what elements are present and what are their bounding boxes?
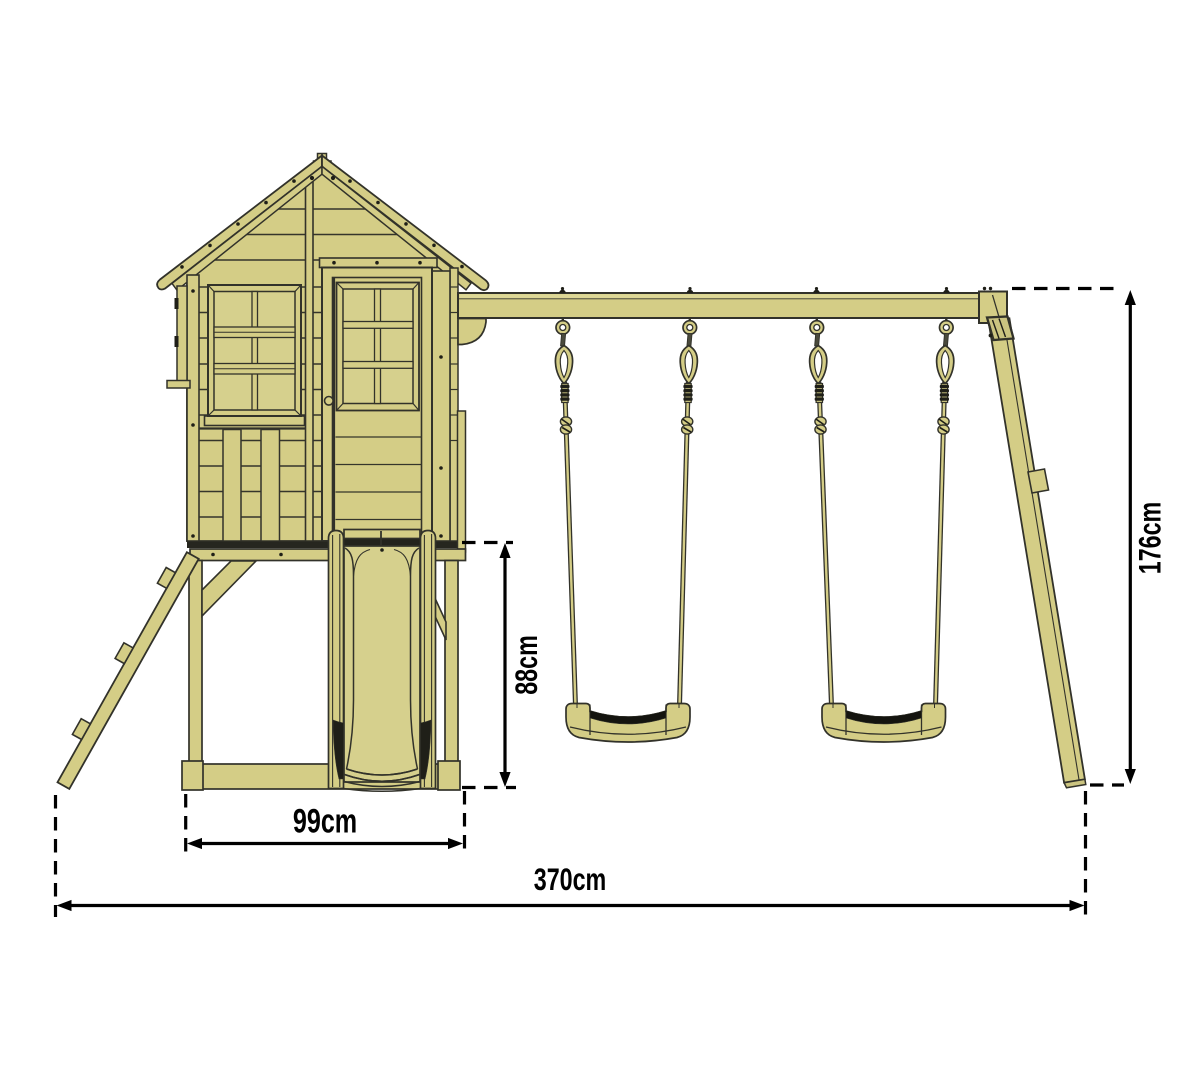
svg-text:176cm: 176cm — [1132, 502, 1167, 575]
svg-text:99cm: 99cm — [293, 803, 357, 841]
svg-text:370cm: 370cm — [534, 861, 607, 896]
svg-text:88cm: 88cm — [508, 635, 543, 695]
